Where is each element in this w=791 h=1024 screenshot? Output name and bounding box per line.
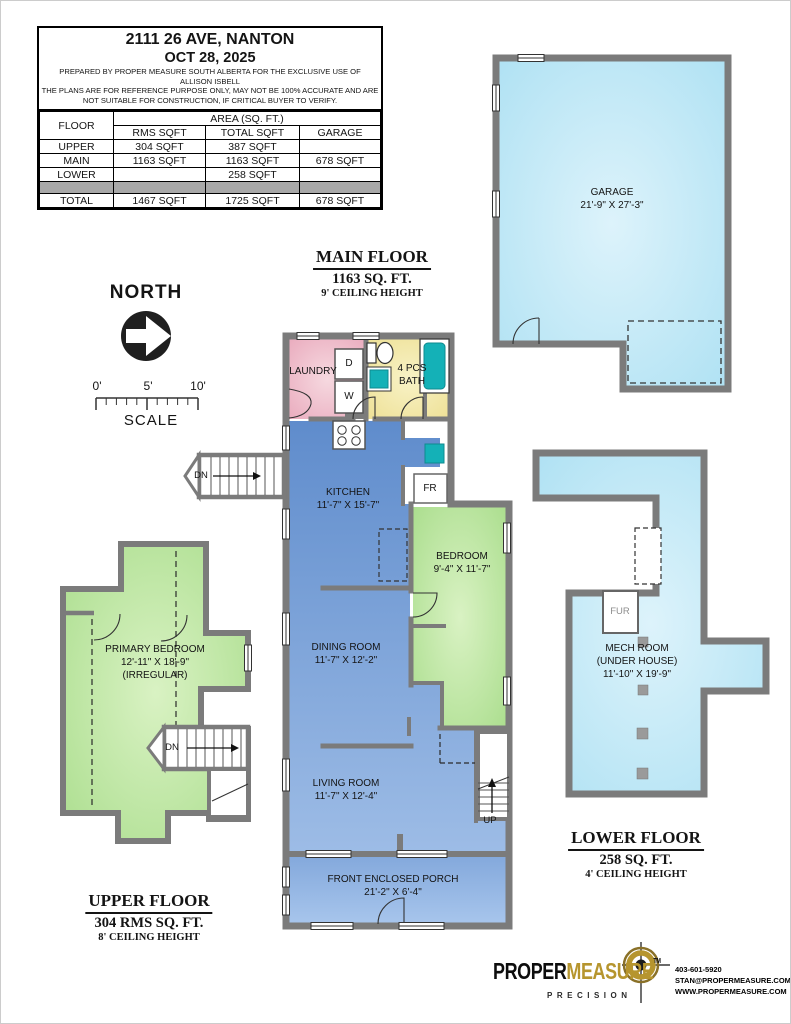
cell-garage: 678 SQFT xyxy=(300,154,381,168)
area-table: FLOOR AREA (SQ. FT.) RMS SQFT TOTAL SQFT… xyxy=(39,111,381,208)
table-row-lower: LOWER 258 SQFT xyxy=(40,168,381,182)
main-floor-title: MAIN FLOOR 1163 SQ. FT. 9' CEILING HEIGH… xyxy=(313,247,431,299)
contact-phone: 403-601-5920 xyxy=(675,964,791,975)
scale-label: SCALE xyxy=(124,412,178,429)
contact-email: STAN@PROPERMEASURE.COM xyxy=(675,975,791,986)
north-label: NORTH xyxy=(110,282,183,304)
cell-total: 258 SQFT xyxy=(206,168,300,182)
up-label: UP xyxy=(483,815,496,826)
table-row-main: MAIN 1163 SQFT 1163 SQFT 678 SQFT xyxy=(40,154,381,168)
laundry-label: LAUNDRY xyxy=(289,365,337,378)
prepared-line-2: ALLISON ISBELL xyxy=(41,77,379,87)
lower-floor-title: LOWER FLOOR 258 SQ. FT. 4' CEILING HEIGH… xyxy=(568,828,704,880)
scale-ruler xyxy=(96,398,198,410)
toilet-icon xyxy=(367,343,393,364)
col-header-total: TOTAL SQFT xyxy=(206,126,300,140)
lower-floor-plan xyxy=(536,453,766,794)
mech-room-label: MECH ROOM (UNDER HOUSE) 11'-10" X 19'-9" xyxy=(597,642,678,681)
furnace-label: FUR xyxy=(610,606,630,617)
primary-bedroom-label: PRIMARY BEDROOM 12'-11" X 18'-9" (IRREGU… xyxy=(105,643,205,682)
chimney-dashed xyxy=(635,528,661,584)
bath-label: 4 PCS BATH xyxy=(398,362,427,388)
dn-label-main: DN xyxy=(194,470,208,481)
floor-plan-sheet: 2111 26 AVE, NANTON OCT 28, 2025 PREPARE… xyxy=(0,0,791,1024)
brand-logo: PROPERMEASURETM xyxy=(493,958,661,985)
table-row-divider xyxy=(40,182,381,194)
table-row-upper: UPPER 304 SQFT 387 SQFT xyxy=(40,140,381,154)
cell-total: 387 SQFT xyxy=(206,140,300,154)
bedroom-label: BEDROOM 9'-4" X 11'-7" xyxy=(434,550,491,576)
stove-icon xyxy=(333,421,365,449)
living-room-label: LIVING ROOM 11'-7" X 12'-4" xyxy=(313,777,380,803)
upper-window xyxy=(245,645,252,671)
dryer-label: D xyxy=(345,357,352,370)
cell-total: 1163 SQFT xyxy=(206,154,300,168)
upper-floor-plan xyxy=(63,544,252,841)
brand-tagline: PRECISION xyxy=(547,991,632,1000)
fridge-label: FR xyxy=(423,482,436,495)
porch-label: FRONT ENCLOSED PORCH 21'-2" X 6'-4" xyxy=(328,873,459,899)
info-box: 2111 26 AVE, NANTON OCT 28, 2025 PREPARE… xyxy=(37,26,383,210)
cell-total: 1725 SQFT xyxy=(206,194,300,208)
cell-rms xyxy=(114,168,206,182)
scale-tick-0: 0' xyxy=(93,379,102,393)
cell-rms: 304 SQFT xyxy=(114,140,206,154)
cell-floor: UPPER xyxy=(40,140,114,154)
washer-label: W xyxy=(344,390,353,403)
brand-proper: PROPER xyxy=(493,958,566,984)
contact-info: 403-601-5920 STAN@PROPERMEASURE.COM WWW.… xyxy=(675,964,791,997)
upper-floor-title: UPPER FLOOR 304 RMS SQ. FT. 8' CEILING H… xyxy=(85,891,212,943)
north-arrow-icon xyxy=(121,311,171,361)
kitchen-label: KITCHEN 11'-7" X 15'-7" xyxy=(317,486,379,512)
info-box-header: 2111 26 AVE, NANTON OCT 28, 2025 PREPARE… xyxy=(39,28,381,111)
address-title: 2111 26 AVE, NANTON xyxy=(41,30,379,49)
table-row-total: TOTAL 1467 SQFT 1725 SQFT 678 SQFT xyxy=(40,194,381,208)
col-header-garage: GARAGE xyxy=(300,126,381,140)
cell-rms: 1163 SQFT xyxy=(114,154,206,168)
col-header-rms: RMS SQFT xyxy=(114,126,206,140)
prepared-line-1: PREPARED BY PROPER MEASURE SOUTH ALBERTA… xyxy=(41,67,379,77)
cell-garage xyxy=(300,140,381,154)
disclaimer-line-2: NOT SUITABLE FOR CONSTRUCTION, IF CRITIC… xyxy=(41,96,379,106)
garage-plan xyxy=(493,55,729,390)
cell-rms: 1467 SQFT xyxy=(114,194,206,208)
cell-floor: MAIN xyxy=(40,154,114,168)
cell-garage xyxy=(300,168,381,182)
kitchen-sink-icon xyxy=(425,444,444,463)
disclaimer-line-1: THE PLANS ARE FOR REFERENCE PURPOSE ONLY… xyxy=(41,86,379,96)
bath-sink-icon xyxy=(367,367,391,391)
col-header-area: AREA (SQ. FT.) xyxy=(114,112,381,126)
brand-tm: TM xyxy=(653,958,660,965)
col-header-floor: FLOOR xyxy=(40,112,114,140)
contact-website: WWW.PROPERMEASURE.COM xyxy=(675,986,791,997)
garage-label: GARAGE 21'-9" X 27'-3" xyxy=(580,186,643,212)
cell-floor: LOWER xyxy=(40,168,114,182)
plan-date: OCT 28, 2025 xyxy=(41,49,379,67)
cell-floor: TOTAL xyxy=(40,194,114,208)
scale-tick-5: 5' xyxy=(144,379,153,393)
brand-measure: MEASURE xyxy=(566,958,653,984)
cell-garage: 678 SQFT xyxy=(300,194,381,208)
scale-tick-10: 10' xyxy=(190,379,206,393)
dining-room-label: DINING ROOM 11'-7" X 12'-2" xyxy=(312,641,381,667)
dn-label-upper: DN xyxy=(165,742,179,753)
